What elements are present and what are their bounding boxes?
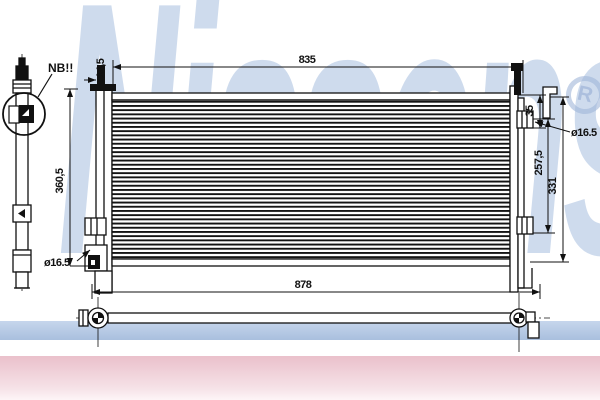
right-pipe-fitting bbox=[510, 309, 539, 338]
drier-bottom-tip bbox=[16, 272, 28, 288]
dim-bracket-offset: 14,5 bbox=[95, 58, 107, 78]
drier-top-fitting bbox=[16, 66, 28, 81]
condenser-front-view bbox=[85, 63, 557, 293]
right-port-block-lower bbox=[517, 217, 533, 234]
bottom-profile-view bbox=[76, 293, 550, 352]
left-tank-foot bbox=[95, 271, 112, 293]
note-label: NB!! bbox=[48, 61, 73, 75]
note-leader-line bbox=[38, 74, 52, 97]
dim-right-height-total: 331 bbox=[547, 177, 559, 194]
drier-bottom-block bbox=[13, 250, 31, 272]
condenser-core bbox=[112, 100, 510, 259]
technical-drawing-page: Nissens R bbox=[0, 0, 600, 400]
condenser-drawing: NB!! bbox=[0, 0, 600, 400]
dim-port-diameter-right: ø16.5 bbox=[571, 127, 597, 139]
core-bottom-header bbox=[112, 259, 510, 266]
dim-top-port-offset: 35 bbox=[524, 105, 536, 117]
left-port-block-upper bbox=[85, 218, 106, 235]
left-port-block-lower bbox=[85, 245, 107, 271]
left-pipe-fitting bbox=[88, 308, 108, 328]
dim-left-height: 360,5 bbox=[54, 168, 66, 193]
dim-core-width: 835 bbox=[299, 54, 316, 66]
receiver-drier-side-view bbox=[13, 54, 31, 294]
sight-glass-housing bbox=[9, 106, 19, 123]
dim-right-port-span: 257,5 bbox=[533, 150, 545, 175]
dim-overall-width: 878 bbox=[295, 279, 312, 291]
profile-tube bbox=[108, 313, 512, 323]
mounting-bracket-right bbox=[543, 87, 557, 118]
core-top-header bbox=[112, 93, 510, 100]
dim-port-diameter-left: ø16.5 bbox=[44, 257, 70, 269]
drier-collar bbox=[13, 80, 31, 93]
